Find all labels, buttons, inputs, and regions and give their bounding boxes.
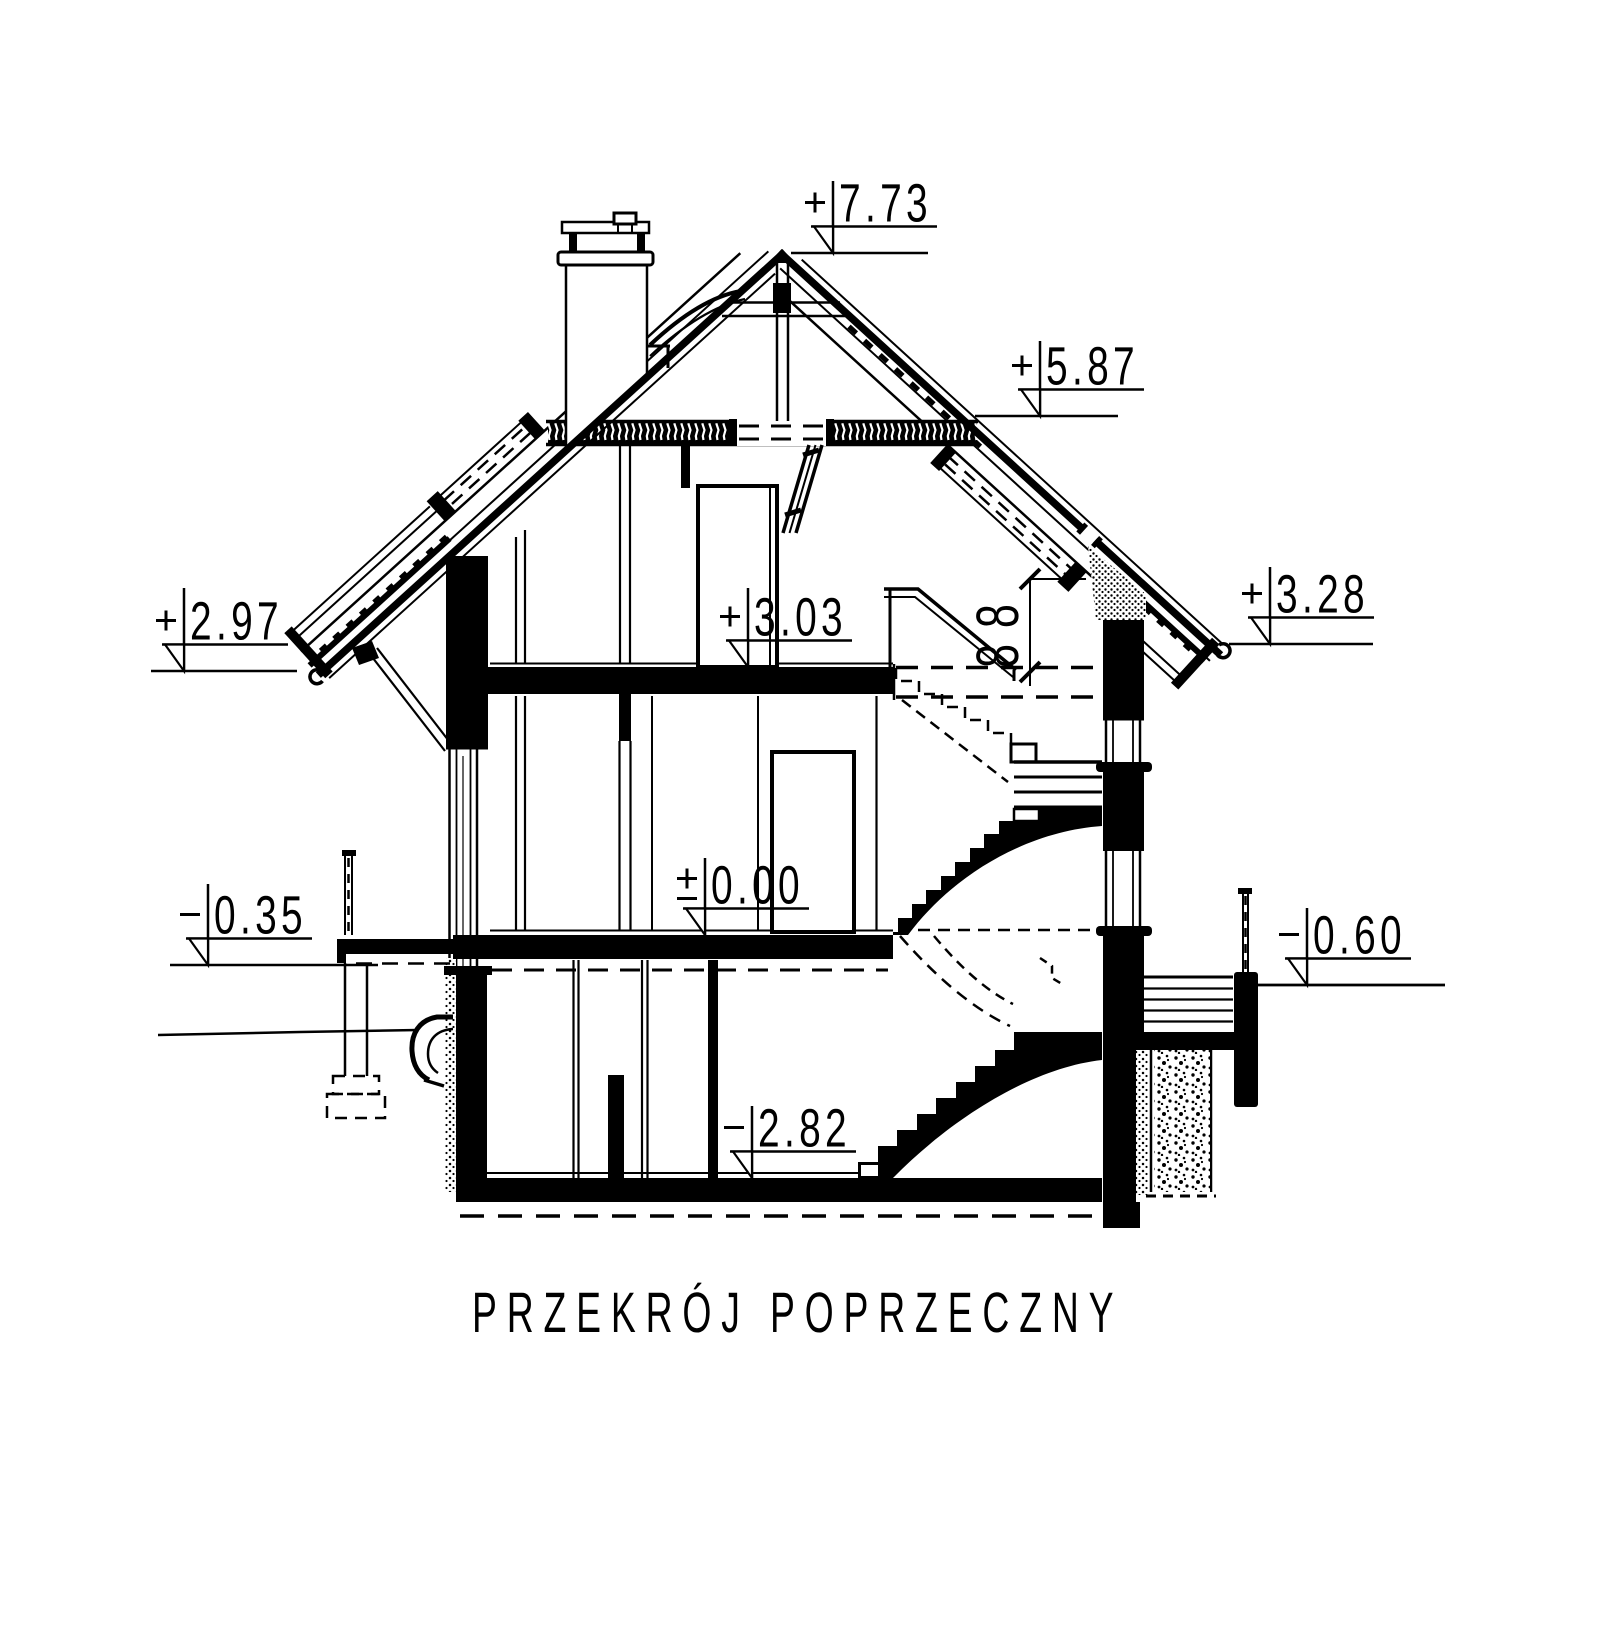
svg-text:0.00: 0.00 [711,856,804,916]
svg-text:5.87: 5.87 [1046,337,1139,397]
svg-text:2.82: 2.82 [758,1099,851,1159]
svg-text:0.35: 0.35 [214,886,307,946]
svg-text:7.73: 7.73 [839,174,932,234]
svg-text:88: 88 [964,588,1031,668]
svg-text:PRZEKRÓJ POPRZECZNY: PRZEKRÓJ POPRZECZNY [472,1281,1123,1345]
svg-text:3.03: 3.03 [754,588,847,648]
svg-text:0.60: 0.60 [1313,906,1406,966]
svg-text:3.28: 3.28 [1276,565,1369,625]
svg-text:2.97: 2.97 [190,592,283,652]
